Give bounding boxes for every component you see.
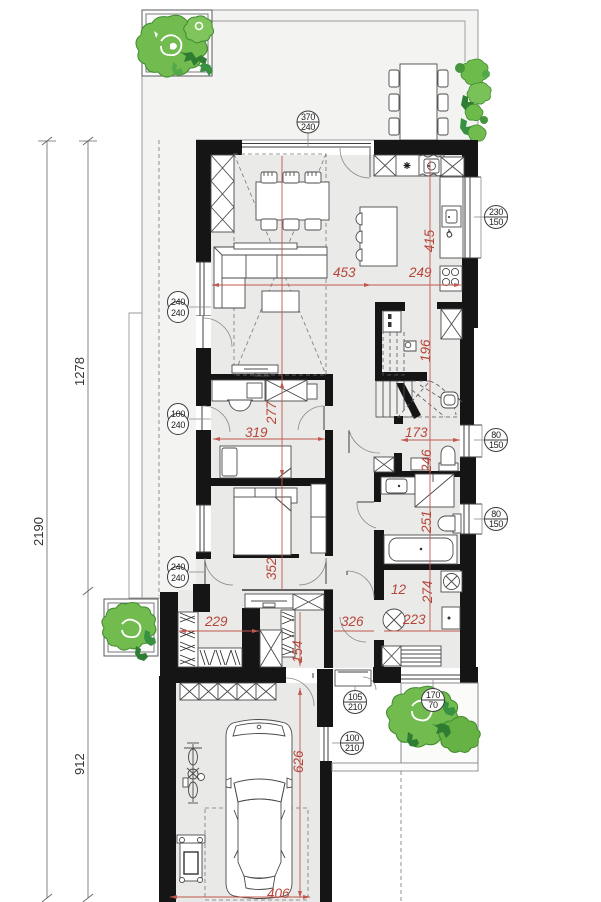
svg-text:173: 173	[405, 425, 428, 440]
svg-text:1278: 1278	[72, 357, 87, 386]
svg-text:415: 415	[422, 229, 437, 252]
svg-text:210: 210	[348, 702, 362, 712]
svg-text:210: 210	[345, 743, 359, 753]
svg-text:2190: 2190	[31, 517, 46, 546]
svg-text:154: 154	[290, 640, 305, 663]
svg-text:249: 249	[408, 265, 432, 280]
svg-text:150: 150	[489, 519, 503, 529]
svg-text:240: 240	[171, 297, 185, 307]
svg-text:240: 240	[171, 308, 185, 318]
svg-text:229: 229	[204, 614, 228, 629]
svg-text:453: 453	[333, 265, 356, 280]
svg-text:326: 326	[341, 614, 364, 629]
svg-text:274: 274	[420, 580, 435, 604]
svg-text:319: 319	[245, 425, 268, 440]
svg-text:100: 100	[345, 733, 359, 743]
svg-text:223: 223	[402, 612, 426, 627]
svg-text:105: 105	[348, 692, 362, 702]
svg-text:230: 230	[489, 207, 503, 217]
svg-text:352: 352	[264, 557, 279, 580]
svg-text:70: 70	[428, 700, 438, 710]
svg-text:626: 626	[291, 750, 306, 773]
svg-text:80: 80	[491, 430, 501, 440]
svg-text:240: 240	[171, 573, 185, 583]
svg-text:240: 240	[301, 122, 315, 132]
svg-text:150: 150	[489, 440, 503, 450]
svg-text:246: 246	[419, 449, 434, 473]
svg-text:240: 240	[171, 562, 185, 572]
svg-text:170: 170	[426, 690, 440, 700]
svg-text:100: 100	[171, 409, 185, 419]
svg-text:240: 240	[171, 420, 185, 430]
svg-text:80: 80	[491, 509, 501, 519]
svg-text:912: 912	[72, 753, 87, 775]
svg-text:370: 370	[301, 112, 315, 122]
svg-text:150: 150	[489, 217, 503, 227]
svg-text:12: 12	[391, 582, 407, 597]
svg-text:277: 277	[264, 401, 279, 425]
svg-text:406: 406	[267, 886, 290, 901]
svg-text:251: 251	[419, 510, 434, 534]
svg-text:196: 196	[418, 339, 433, 362]
